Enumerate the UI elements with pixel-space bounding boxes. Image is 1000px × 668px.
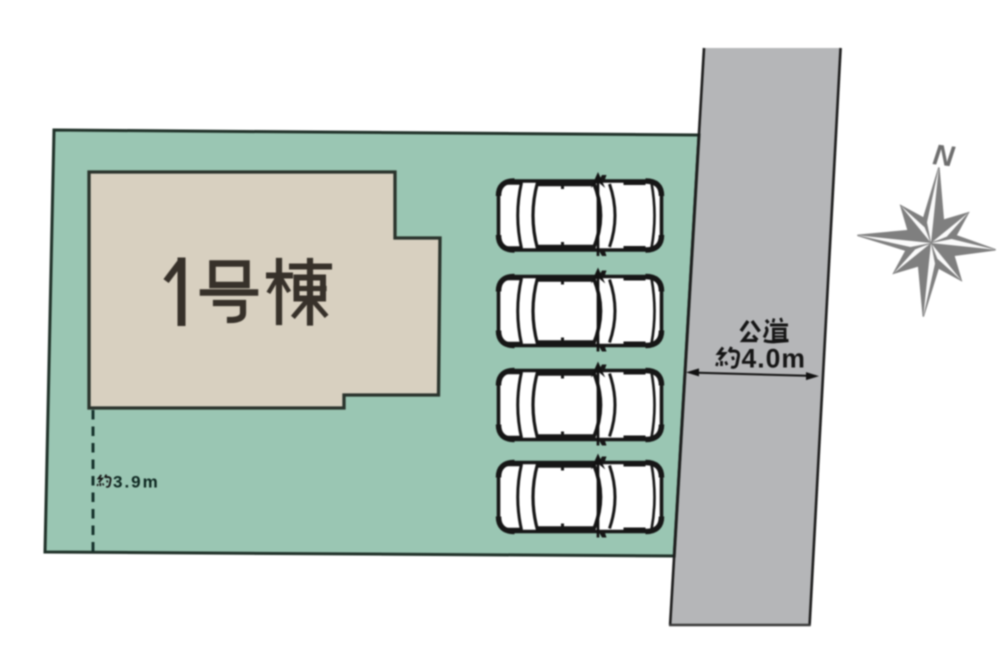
svg-text:4.0m: 4.0m (742, 344, 806, 374)
svg-text:3.9m: 3.9m (113, 473, 160, 492)
